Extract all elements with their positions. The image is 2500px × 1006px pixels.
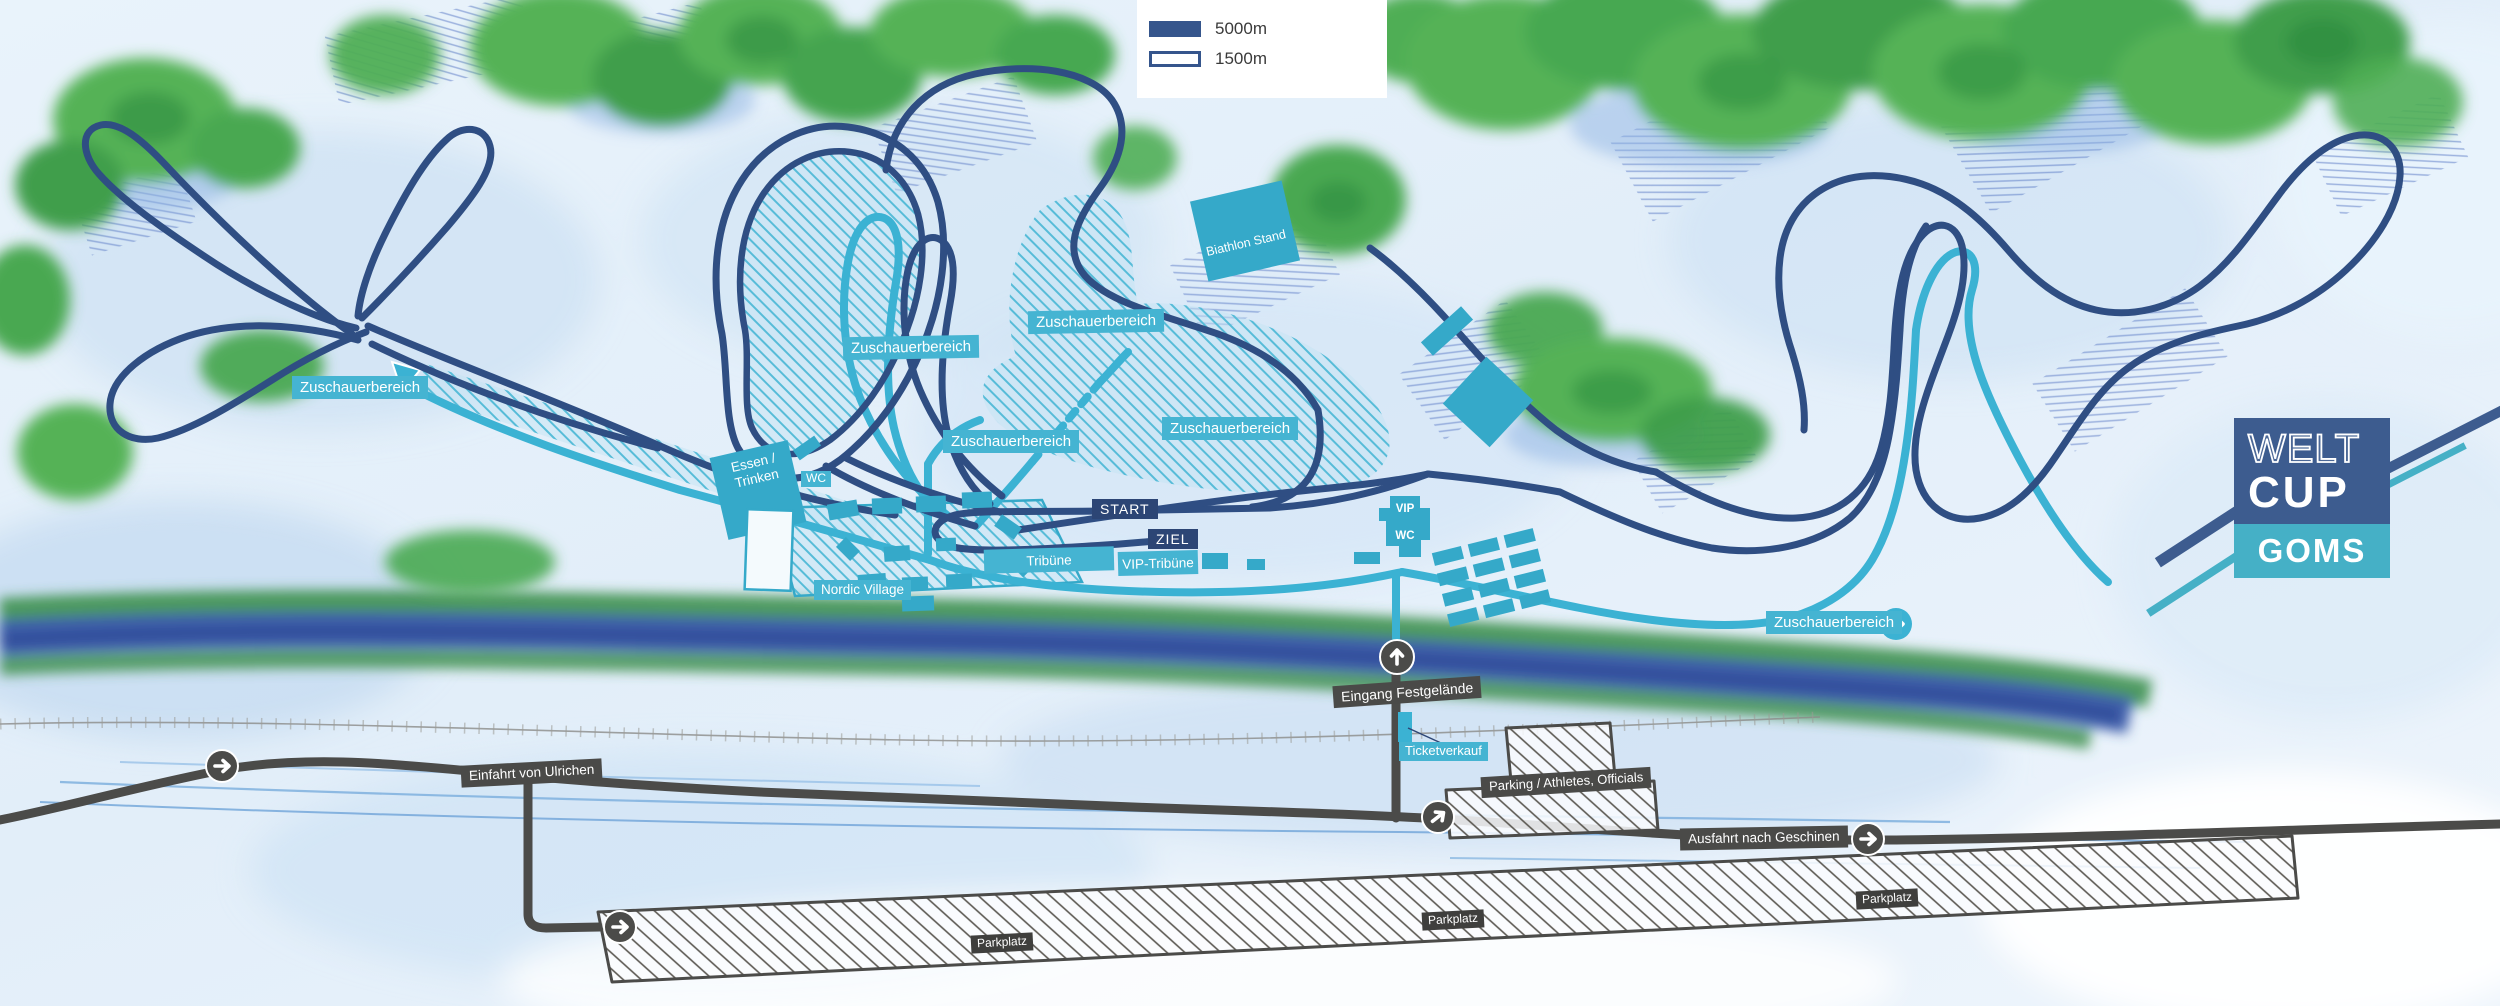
finish-label: ZIEL	[1148, 529, 1198, 549]
parking-lot-label: Parkplatz	[1422, 909, 1485, 930]
logo-welt-text: WELT	[2248, 428, 2390, 470]
spectator-area-label: Zuschauerbereich	[1766, 611, 1902, 634]
vip-small-block	[1354, 552, 1380, 564]
legend: 5000m 1500m	[1137, 0, 1387, 98]
ticket-sales-label: Ticketverkauf	[1399, 742, 1488, 761]
grandstand-label: Tribüne	[984, 546, 1115, 573]
map-artwork	[0, 0, 2500, 1006]
legend-item-1500m: 1500m	[1149, 50, 1267, 68]
legend-swatch-1500m	[1149, 51, 1201, 67]
legend-item-5000m: 5000m	[1149, 20, 1267, 38]
weltcup-goms-logo: WELT CUP GOMS	[2234, 418, 2390, 578]
venue-map: 5000m 1500m Zuschauerbereich Zuschauerbe…	[0, 0, 2500, 1006]
logo-upper-block: WELT CUP	[2234, 418, 2390, 524]
vip-grandstand-label: VIP-Tribüne	[1118, 550, 1199, 576]
logo-lower-block: GOMS	[2234, 524, 2390, 578]
nordic-village-label: Nordic Village	[814, 580, 911, 600]
logo-goms-text: GOMS	[2258, 532, 2367, 570]
entrance-up-arrow-icon	[1380, 640, 1414, 674]
parking-lot-label: Parkplatz	[1856, 888, 1919, 909]
spectator-area-label: Zuschauerbereich	[843, 335, 979, 361]
spectator-area-label: Zuschauerbereich	[1162, 417, 1298, 440]
vip-wc-label: WC	[1384, 530, 1426, 543]
road-arrow-icon	[1852, 823, 1884, 855]
spectator-area-label: Zuschauerbereich	[292, 376, 428, 399]
logo-cup-text: CUP	[2248, 470, 2390, 516]
spectator-area-label: Zuschauerbereich	[1028, 309, 1164, 335]
village-white-building	[745, 509, 794, 591]
legend-label-5000m: 5000m	[1215, 19, 1267, 39]
road-arrow-icon	[206, 750, 238, 782]
legend-swatch-5000m	[1149, 21, 1201, 37]
exit-road-label: Ausfahrt nach Geschinen	[1680, 826, 1848, 850]
legend-label-1500m: 1500m	[1215, 49, 1267, 69]
spectator-area-label: Zuschauerbereich	[943, 430, 1079, 453]
wc-label: WC	[801, 471, 831, 487]
start-label: START	[1092, 499, 1158, 519]
ticket-booth	[1398, 712, 1412, 742]
parking-lot-label: Parkplatz	[971, 932, 1034, 953]
vip-building-label: VIP	[1384, 503, 1426, 516]
road-arrow-icon	[604, 911, 636, 943]
